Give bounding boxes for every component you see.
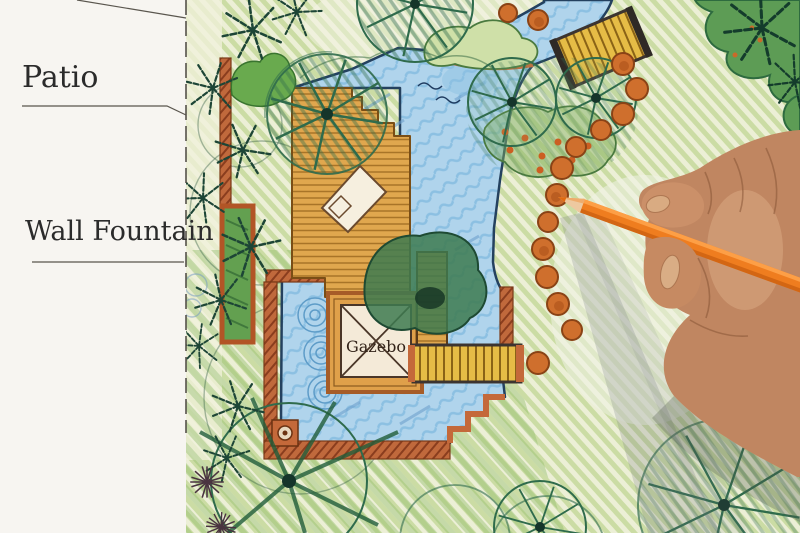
paper-margin: Patio Wall Fountain (0, 0, 214, 533)
planter (222, 206, 253, 342)
plan-drawing: Patio Wall Fountain Gazebo (0, 0, 800, 533)
landscape-plan-photo: Patio Wall Fountain Gazebo (0, 0, 800, 533)
pond-right-wall (500, 287, 513, 345)
boardwalk (408, 345, 524, 382)
tree-over-gazebo (364, 232, 486, 333)
label-gazebo: Gazebo (346, 337, 406, 356)
fountain-pot (272, 420, 298, 446)
label-wall-fountain: Wall Fountain (25, 216, 214, 247)
tree-over-deck (265, 52, 387, 174)
tree (468, 58, 556, 146)
label-patio: Patio (22, 60, 98, 95)
